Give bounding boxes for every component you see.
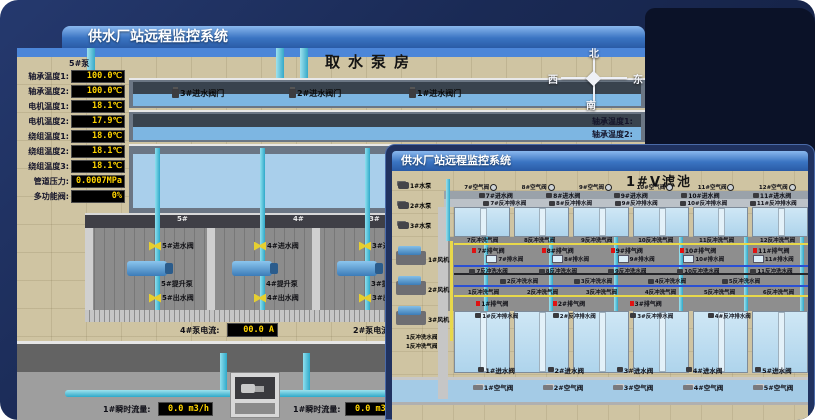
air-valve-item[interactable]: 4#空气阀: [683, 382, 723, 392]
valve-label: 3#进水阀: [624, 365, 653, 375]
compass-icon: 北 西 南 东: [551, 48, 645, 110]
window-titlebar[interactable]: 供水厂站远程监控系统: [62, 26, 645, 48]
air-pipe: [450, 241, 453, 341]
readout-value[interactable]: 18.0℃: [71, 130, 125, 143]
valve-label: 12反冲洗气阀: [760, 236, 795, 244]
air-valve-item[interactable]: 2#空气阀: [543, 382, 583, 392]
pump-icon[interactable]: [232, 261, 272, 276]
valve-icon: [359, 242, 371, 251]
valve-icon: [549, 201, 555, 206]
bw-air-item[interactable]: 7反冲洗气阀: [467, 236, 498, 244]
valve-label: 2#进水阀: [555, 365, 584, 375]
readout-value[interactable]: 18.1℃: [71, 160, 125, 173]
drain-valve-item[interactable]: 7#排水阀: [486, 255, 523, 263]
valve-label: 8反冲洗水阀: [546, 267, 577, 275]
valve-icon: [750, 201, 756, 206]
bay-pipe: [365, 148, 370, 313]
valve-icon: [172, 89, 179, 98]
valve-label: 7反冲洗水阀: [476, 267, 507, 275]
readout-value[interactable]: 18.1℃: [71, 100, 125, 113]
valve-icon: [149, 242, 161, 251]
readout-label: 管道压力:: [21, 176, 69, 187]
valve-icon: [630, 313, 636, 318]
mid-drain-top-row: 7#排水阀 8#排水阀 9#排水阀 10#排水阀 11#排水阀: [472, 255, 808, 263]
flag-icon: [753, 248, 757, 253]
flag-icon: [476, 301, 480, 306]
valve-label: 4#进水阀: [693, 365, 722, 375]
flag-icon: [680, 248, 684, 253]
intake-channel-2: [129, 110, 645, 142]
bw-water-item[interactable]: 9反冲洗水阀: [608, 267, 646, 275]
valve-icon: [254, 242, 266, 251]
drain-valve-item[interactable]: 10#排水阀: [683, 255, 724, 263]
bw-drain-item[interactable]: 1#反冲排水阀: [475, 312, 518, 320]
valve-icon: [614, 193, 620, 198]
valve-icon: [359, 294, 371, 303]
valve-label: 2反冲洗气阀: [527, 288, 558, 296]
water-header-pipe-2: [454, 285, 808, 287]
valve-label: 8#排水阀: [564, 255, 589, 263]
bay-number: 3#: [369, 215, 380, 223]
valve-label: 3#进水阀门: [180, 88, 224, 99]
bottom-bw-drain-row: 1#反冲排水阀 2#反冲排水阀 3#反冲排水阀 4#反冲排水阀: [458, 312, 768, 319]
valve-icon: [755, 367, 761, 372]
valve-label: 7#反冲排水阀: [490, 199, 526, 207]
valve-label: 7#排水阀: [498, 255, 523, 263]
tank-icon: [683, 255, 694, 263]
readout-label: 绕组温度1:: [21, 131, 69, 142]
current-value[interactable]: 00.0 A: [227, 323, 278, 337]
bw-water-item[interactable]: 8反冲洗水阀: [539, 267, 577, 275]
exhaust-valve-item[interactable]: 9#排气阀: [611, 246, 643, 255]
valve-icon: [543, 385, 553, 390]
gear-icon: [490, 184, 497, 191]
drain-valve-item[interactable]: 9#排水阀: [618, 255, 655, 263]
exhaust-valve-item[interactable]: 2#排气阀: [553, 299, 585, 308]
valve-label: 2#进水阀门: [297, 88, 341, 99]
bw-drain-item[interactable]: 8#反冲排水阀: [549, 199, 592, 207]
inlet-valve-2[interactable]: 2#进水阀门: [289, 88, 341, 99]
compass-west: 西: [548, 71, 558, 86]
bw-drain-item[interactable]: 11#反冲排水阀: [750, 199, 797, 207]
valve-icon: [677, 269, 683, 274]
bay-number: 4#: [293, 215, 304, 223]
bw-drain-item[interactable]: 9#反冲排水阀: [615, 199, 658, 207]
valve-label: 1反冲洗气阀: [468, 288, 499, 296]
pump-label: 3#水泵: [410, 221, 431, 230]
flow-value[interactable]: 0.0 m3/h: [158, 402, 213, 416]
valve-label: 3#反冲排水阀: [637, 312, 673, 320]
valve-label: 4#进水阀: [267, 241, 299, 251]
bw-drain-item[interactable]: 10#反冲排水阀: [680, 199, 727, 207]
pump-icon: [398, 202, 409, 209]
bw-water-item[interactable]: 2反冲洗水阀: [500, 277, 538, 285]
pump-label: 1#水泵: [410, 181, 431, 190]
window-titlebar[interactable]: 供水厂站远程监控系统: [392, 151, 808, 171]
gear-icon: [666, 184, 673, 191]
valve-label: 5#进水阀: [162, 241, 194, 251]
readout-value[interactable]: 100.0℃: [71, 70, 125, 83]
inlet-valve-item[interactable]: 5#进水阀: [755, 365, 791, 375]
readout-label: 电机温度1:: [21, 101, 69, 112]
inlet-valve-3[interactable]: 3#进水阀门: [172, 88, 224, 99]
right-panel-label: 轴承温度2:: [592, 129, 633, 140]
bw-air-item[interactable]: 10反冲洗气阀: [638, 236, 673, 244]
flag-icon: [630, 301, 634, 306]
blower-label: 3#风机: [428, 315, 449, 324]
valve-label: 5#出水阀: [162, 293, 194, 303]
right-panel-label: 轴承温度1:: [592, 116, 633, 127]
valve-icon: [289, 89, 296, 98]
flow-label: 1#瞬时流量:: [293, 404, 340, 415]
valve-label: 1#排气阀: [481, 299, 508, 308]
flow-label: 1#瞬时流量:: [103, 404, 150, 415]
bw-air-item[interactable]: 6反冲洗气阀: [763, 288, 794, 296]
blower-icon[interactable]: [396, 281, 426, 295]
valve-label: 9#排水阀: [630, 255, 655, 263]
valve-label: 4#出水阀: [267, 293, 299, 303]
top-inlet-valve-row: 7#进水阀 8#进水阀 9#进水阀 10#进水阀 11#进水阀: [462, 191, 808, 199]
exhaust-valve-item[interactable]: 8#排气阀: [542, 246, 574, 255]
bw-drain-item[interactable]: 4#反冲排水阀: [708, 312, 751, 320]
bw-air-item[interactable]: 9反冲洗气阀: [581, 236, 612, 244]
bay-pillar: [312, 228, 320, 310]
mid-bw-air-top-row: 7反冲洗气阀 8反冲洗气阀 9反冲洗气阀 10反冲洗气阀 11反冲洗气阀 12反…: [454, 236, 808, 243]
bw-water-item[interactable]: 5反冲洗水阀: [722, 277, 760, 285]
air-valve-item[interactable]: 9#空气阀: [579, 183, 612, 191]
air-header-pipe-2: [454, 295, 808, 297]
bay4-outlet-valve[interactable]: 4#出水阀: [254, 293, 299, 303]
valve-label: 8反冲洗气阀: [524, 236, 555, 244]
valve-label: 5反冲洗水阀: [729, 277, 760, 285]
valve-label: 1#空气阀: [484, 382, 513, 392]
bw-air-item[interactable]: 12反冲洗气阀: [760, 236, 795, 244]
inlet-valve-item[interactable]: 2#进水阀: [548, 365, 584, 375]
pump-item[interactable]: 3#水泵: [398, 221, 431, 230]
compass-east: 东: [633, 71, 643, 86]
mid-exhaust-top-row: 7#排气阀 8#排气阀 9#排气阀 10#排气阀 11#排气阀: [454, 246, 808, 254]
valve-label: 4#反冲排水阀: [715, 312, 751, 320]
bw-air-item[interactable]: 4反冲洗气阀: [645, 288, 676, 296]
valve-label: 9#空气阀: [579, 183, 604, 191]
pipe-riser: [300, 48, 308, 80]
filter-cell: [454, 207, 510, 237]
valve-label: 11反冲洗水阀: [757, 267, 792, 275]
valve-icon: [574, 279, 580, 284]
exhaust-valve-item[interactable]: 7#排气阀: [472, 246, 504, 255]
valve-icon: [473, 385, 483, 390]
filter-cell: [693, 207, 749, 237]
pump-label: 4#提升泵: [266, 279, 298, 289]
drain-valve-item[interactable]: 8#排水阀: [552, 255, 589, 263]
air-valve-item[interactable]: 3#空气阀: [613, 382, 653, 392]
pump-label: 5#提升泵: [161, 279, 193, 289]
valve-icon: [475, 313, 481, 318]
inlet-valve-item[interactable]: 1#进水阀: [478, 365, 514, 375]
bw-water-item[interactable]: 7反冲洗水阀: [469, 267, 507, 275]
valve-icon: [553, 313, 559, 318]
valve-label: 11#排水阀: [765, 255, 794, 263]
inlet-valve-1[interactable]: 1#进水阀门: [409, 88, 461, 99]
valve-label: 9#排气阀: [616, 246, 643, 255]
bw-water-item[interactable]: 11反冲洗水阀: [750, 267, 792, 275]
valve-icon: [722, 279, 728, 284]
valve-label: 6反冲洗气阀: [763, 288, 794, 296]
flag-icon: [611, 248, 615, 253]
mid-exhaust-bottom-row: 1#排气阀 2#排气阀 3#排气阀: [454, 299, 684, 307]
desktop: 供水厂站远程监控系统 取水泵房 5#泵 轴承温度1:100.0℃ 轴承温度2:1…: [0, 0, 815, 420]
pump-label: 2#水泵: [410, 201, 431, 210]
bw-drain-item[interactable]: 3#反冲排水阀: [630, 312, 673, 320]
valve-label: 10#排水阀: [695, 255, 724, 263]
valve-label: 3#排气阀: [635, 299, 662, 308]
valve-icon: [469, 269, 475, 274]
blower-label: 1#风机: [428, 255, 449, 264]
pump-icon[interactable]: [127, 261, 167, 276]
valve-icon: [409, 89, 416, 98]
valve-icon: [483, 201, 489, 206]
valve-label: 5#进水阀: [762, 365, 791, 375]
valve-icon: [708, 313, 714, 318]
valve-label: 2#反冲排水阀: [560, 312, 596, 320]
valve-label: 7#排气阀: [477, 246, 504, 255]
bw-air-item[interactable]: 8反冲洗气阀: [524, 236, 555, 244]
pump-icon: [398, 182, 409, 189]
valve-icon: [750, 269, 756, 274]
pump-icon: [398, 222, 409, 229]
scene-title: 取水泵房: [325, 51, 417, 72]
valve-label: 3反冲洗气阀: [586, 288, 617, 296]
valve-icon: [753, 193, 759, 198]
gear-icon: [727, 184, 734, 191]
readout-label: 多功能阀:: [21, 191, 69, 202]
valve-icon: [686, 367, 692, 372]
bw-air-item[interactable]: 2反冲洗气阀: [527, 288, 558, 296]
valve-label: 1#反冲排水阀: [482, 312, 518, 320]
compass-north: 北: [589, 48, 599, 60]
exhaust-valve-item[interactable]: 3#排气阀: [630, 299, 662, 308]
valve-icon: [615, 201, 621, 206]
valve-label: 4反冲洗水阀: [655, 277, 686, 285]
valve-label: 10反冲洗气阀: [638, 236, 673, 244]
valve-icon: [254, 294, 266, 303]
bay5-inlet-valve[interactable]: 5#进水阀: [149, 241, 194, 251]
left-valve-label: 1反冲洗气阀: [406, 342, 437, 350]
bw-water-item[interactable]: 3反冲洗水阀: [574, 277, 612, 285]
bottom-air-valve-row: 1#空气阀 2#空气阀 3#空气阀 4#空气阀 5#空气阀: [458, 381, 808, 393]
valve-icon: [680, 201, 686, 206]
valve-label: 8#空气阀: [522, 183, 547, 191]
valve-icon: [753, 385, 763, 390]
valve-icon: [479, 193, 485, 198]
valve-label: 3#空气阀: [624, 382, 653, 392]
compass-south: 南: [586, 97, 596, 112]
pipe-riser: [220, 353, 227, 395]
gear-icon: [605, 184, 612, 191]
bw-water-item[interactable]: 10反冲洗水阀: [677, 267, 719, 275]
valve-icon: [539, 269, 545, 274]
filter-cell: [514, 207, 570, 237]
valve-label: 5#空气阀: [764, 382, 793, 392]
readout-label: 绕组温度2:: [21, 146, 69, 157]
valve-label: 7反冲洗气阀: [467, 236, 498, 244]
gear-icon: [789, 184, 796, 191]
valve-label: 9#反冲排水阀: [622, 199, 658, 207]
bay5-outlet-valve[interactable]: 5#出水阀: [149, 293, 194, 303]
flag-icon: [472, 248, 476, 253]
tank-icon: [486, 255, 497, 263]
valve-label: 9反冲洗水阀: [615, 267, 646, 275]
valve-label: 2#排气阀: [558, 299, 585, 308]
bay-pipe: [260, 148, 265, 313]
bw-air-item[interactable]: 1反冲洗气阀: [468, 288, 499, 296]
blower-label: 2#风机: [428, 285, 449, 294]
inlet-valve-item[interactable]: 3#进水阀: [617, 365, 653, 375]
bay-pipe: [155, 148, 160, 313]
exhaust-valve-item[interactable]: 10#排气阀: [680, 246, 716, 255]
pipe-riser: [303, 353, 310, 395]
air-valve-item[interactable]: 5#空气阀: [753, 382, 793, 392]
readout-value[interactable]: 18.1℃: [71, 145, 125, 158]
upper-filter-cells: [454, 207, 808, 237]
readout-value[interactable]: 17.9℃: [71, 115, 125, 128]
mid-bw-water-top-row: 7反冲洗水阀 8反冲洗水阀 9反冲洗水阀 10反冲洗水阀 11反冲洗水阀: [454, 267, 808, 275]
front-window: 供水厂站远程监控系统 1#V滤池 7#空气阀 8#空气阀 9#空气阀 10#空气…: [385, 144, 815, 420]
valve-icon: [546, 193, 552, 198]
valve-label: 5反冲洗气阀: [704, 288, 735, 296]
bw-drain-item[interactable]: 2#反冲排水阀: [553, 312, 596, 320]
tank-icon: [753, 255, 764, 263]
valve-icon: [548, 367, 554, 372]
exhaust-valve-item[interactable]: 1#排气阀: [476, 299, 508, 308]
blower-icon[interactable]: [396, 251, 426, 265]
valve-label: 9反冲洗气阀: [581, 236, 612, 244]
bay-pillar: [207, 228, 215, 310]
valve-label: 1#进水阀: [485, 365, 514, 375]
valve-icon: [683, 385, 693, 390]
valve-label: 4#空气阀: [694, 382, 723, 392]
readout-label: 电机温度2:: [21, 116, 69, 127]
pipe-riser: [276, 48, 284, 80]
flag-icon: [542, 248, 546, 253]
bw-drain-item[interactable]: 7#反冲排水阀: [483, 199, 526, 207]
inlet-valve-item[interactable]: 4#进水阀: [686, 365, 722, 375]
readout-label: 轴承温度1:: [21, 71, 69, 82]
filter-cell: [752, 207, 808, 237]
readout-value[interactable]: 0%: [71, 190, 125, 203]
valve-label: 11反冲洗气阀: [699, 236, 734, 244]
valve-label: 10#排气阀: [685, 246, 716, 255]
valve-icon: [608, 269, 614, 274]
mid-bw-air-bottom-row: 1反冲洗气阀 2反冲洗气阀 3反冲洗气阀 4反冲洗气阀 5反冲洗气阀 6反冲洗气…: [454, 288, 808, 295]
left-valve-label: 1反冲洗水阀: [406, 333, 437, 341]
valve-label: 8#排气阀: [547, 246, 574, 255]
filter-cell: [573, 207, 629, 237]
pump-room-left-wall: [85, 228, 93, 310]
valve-label: 4反冲洗气阀: [645, 288, 676, 296]
bottom-inlet-valve-row: 1#进水阀 2#进水阀 3#进水阀 4#进水阀 5#进水阀: [462, 365, 808, 374]
mid-bw-water-bottom-row: 2反冲洗水阀 3反冲洗水阀 4反冲洗水阀 5反冲洗水阀: [482, 277, 778, 285]
top-bw-drain-row: 7#反冲排水阀 8#反冲排水阀 9#反冲排水阀 10#反冲排水阀 11#反冲排水…: [472, 199, 808, 207]
valve-label: 10#反冲排水阀: [687, 199, 727, 207]
valve-icon: [617, 367, 623, 372]
flowmeter-icon: [230, 372, 280, 418]
pump5-panel: 5#泵 轴承温度1:100.0℃ 轴承温度2:100.0℃ 电机温度1:18.1…: [19, 48, 127, 208]
bw-air-item[interactable]: 3反冲洗气阀: [586, 288, 617, 296]
filter-cell: [633, 207, 689, 237]
current-label: 4#泵电流:: [180, 325, 219, 336]
valve-label: 8#反冲排水阀: [556, 199, 592, 207]
valve-label: 1#进水阀门: [417, 88, 461, 99]
bw-water-item[interactable]: 4反冲洗水阀: [648, 277, 686, 285]
readout-label: 轴承温度2:: [21, 86, 69, 97]
tank-icon: [552, 255, 563, 263]
gear-icon: [548, 184, 555, 191]
air-valve-item[interactable]: 1#空气阀: [473, 382, 513, 392]
readout-label: 绕组温度3:: [21, 161, 69, 172]
pump-item[interactable]: 2#水泵: [398, 201, 431, 210]
front-window-body: 1#V滤池 7#空气阀 8#空气阀 9#空气阀 10#空气阀 11#空气阀 12…: [392, 171, 808, 420]
readout-value[interactable]: 100.0℃: [71, 85, 125, 98]
drain-valve-item[interactable]: 11#排水阀: [753, 255, 794, 263]
valve-label: 11#排气阀: [758, 246, 789, 255]
valve-label: 3反冲洗水阀: [581, 277, 612, 285]
pump5-panel-header: 5#泵: [69, 58, 89, 69]
exhaust-valve-item[interactable]: 11#排气阀: [753, 246, 789, 255]
bay4-inlet-valve[interactable]: 4#进水阀: [254, 241, 299, 251]
readout-value[interactable]: 0.0007MPa: [71, 175, 125, 188]
tank-icon: [618, 255, 629, 263]
valve-label: 2反冲洗水阀: [507, 277, 538, 285]
valve-icon: [613, 385, 623, 390]
blower-icon[interactable]: [396, 311, 426, 325]
valve-icon: [500, 279, 506, 284]
valve-icon: [478, 367, 484, 372]
valve-icon: [648, 279, 654, 284]
pump-item[interactable]: 1#水泵: [398, 181, 431, 190]
suction-pipe: [446, 179, 450, 241]
valve-icon: [149, 294, 161, 303]
pump-icon[interactable]: [337, 261, 377, 276]
valve-label: 2#空气阀: [554, 382, 583, 392]
bw-air-item[interactable]: 5反冲洗气阀: [704, 288, 735, 296]
valve-label: 10反冲洗水阀: [684, 267, 719, 275]
valve-label: 11#反冲排水阀: [757, 199, 797, 207]
bw-air-item[interactable]: 11反冲洗气阀: [699, 236, 734, 244]
valve-icon: [681, 193, 687, 198]
bay-number: 5#: [177, 215, 188, 223]
flag-icon: [553, 301, 557, 306]
